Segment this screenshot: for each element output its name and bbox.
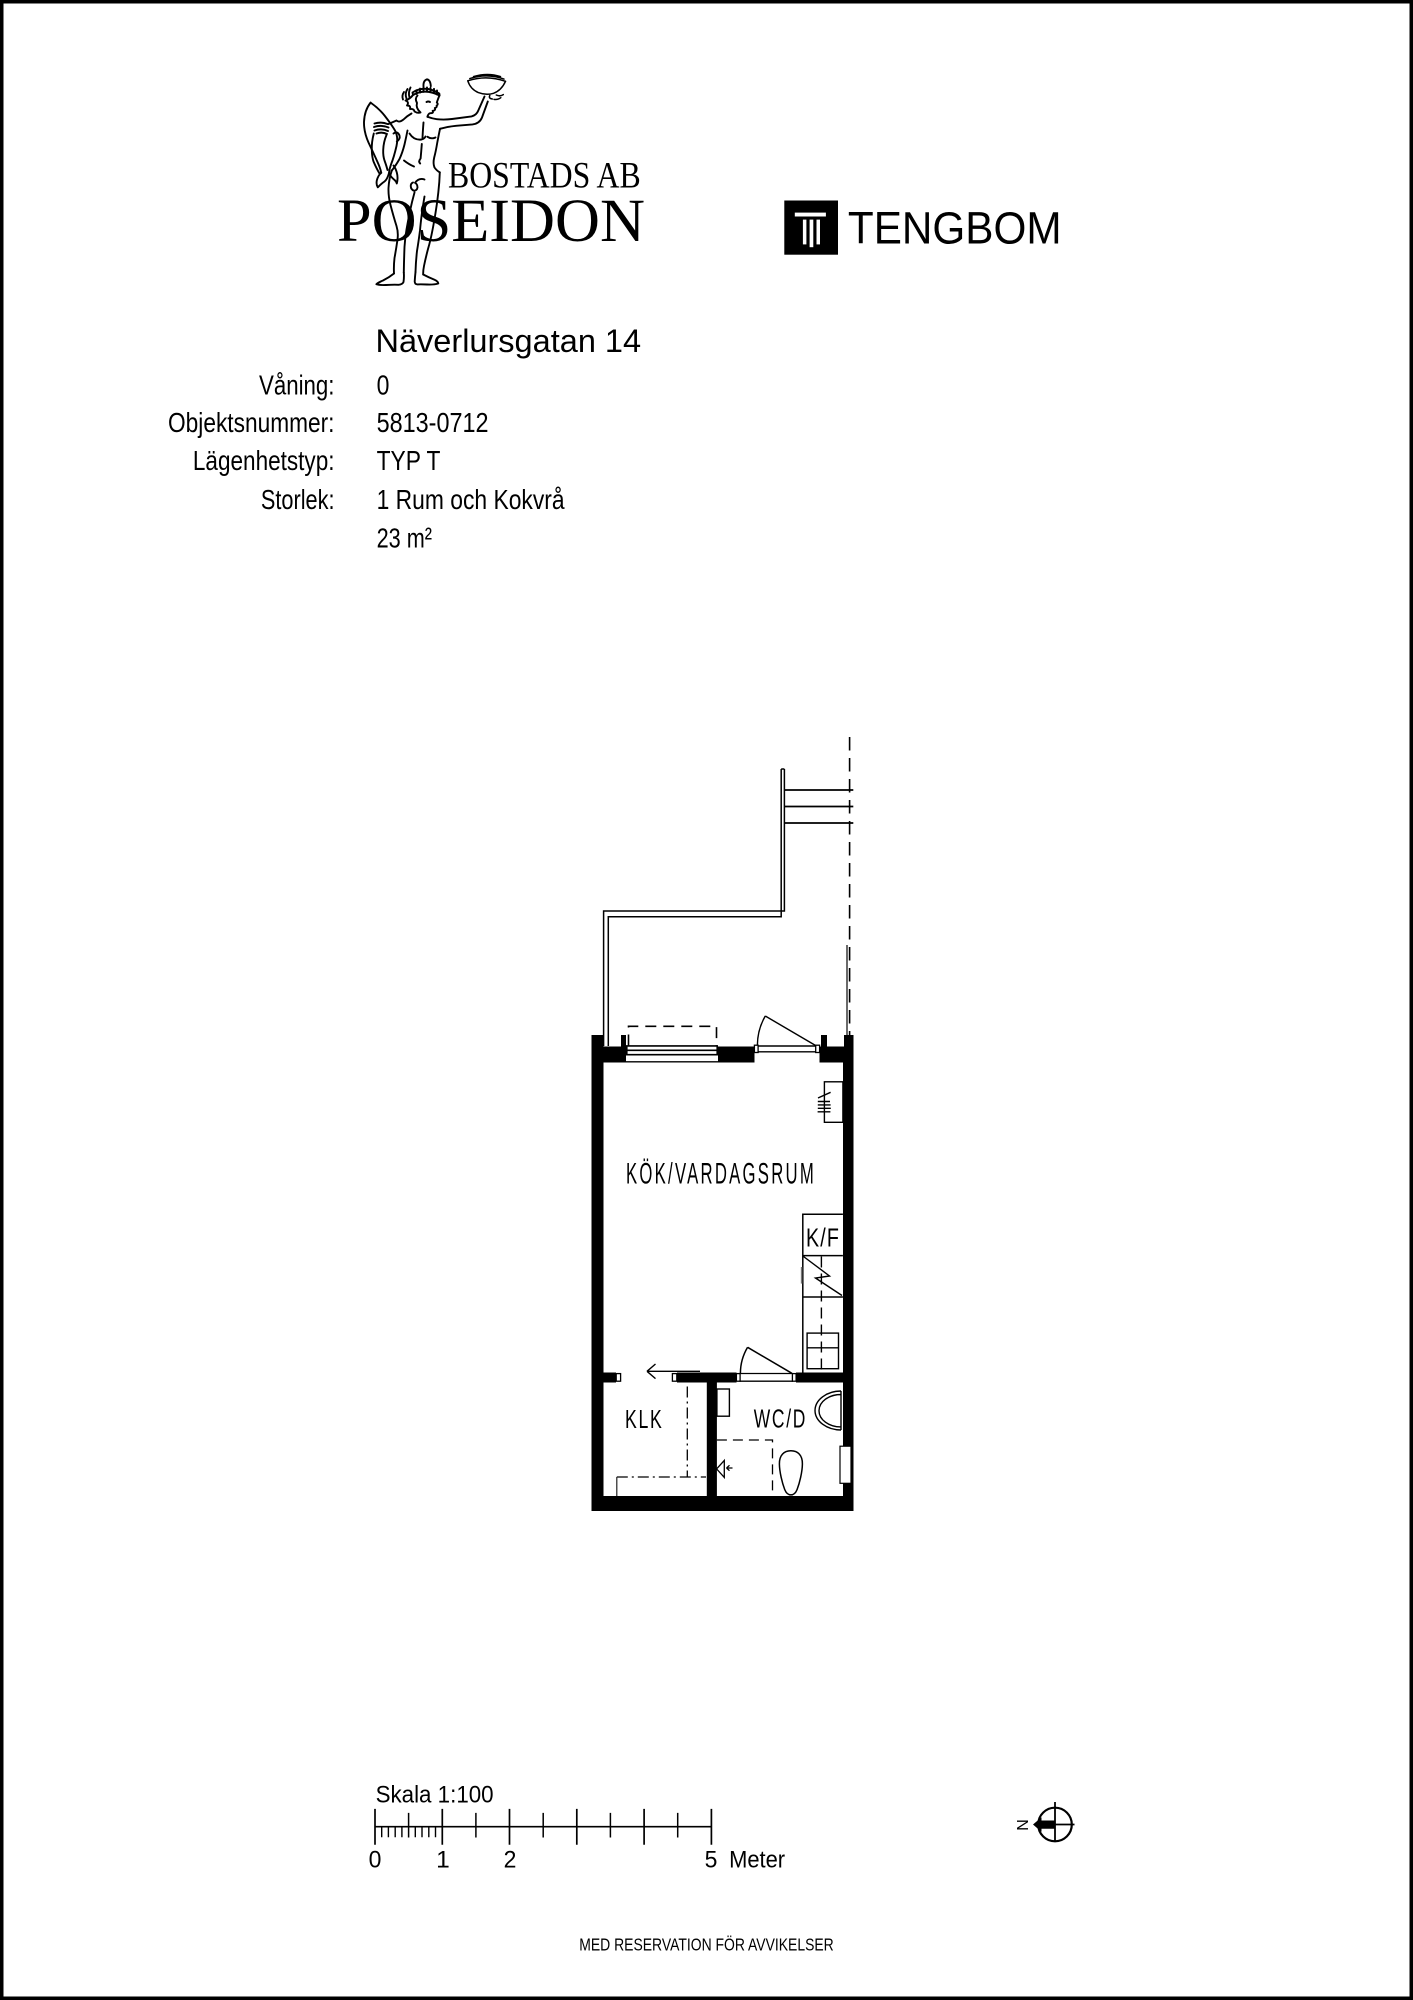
svg-text:5: 5 <box>705 1847 718 1874</box>
svg-text:1 Rum och Kokvrå: 1 Rum och Kokvrå <box>377 484 565 515</box>
svg-text:TENGBOM: TENGBOM <box>848 203 1062 254</box>
svg-text:Skala 1:100: Skala 1:100 <box>376 1782 494 1809</box>
svg-text:5813-0712: 5813-0712 <box>377 407 489 438</box>
svg-text:Storlek:: Storlek: <box>261 484 335 515</box>
svg-text:N: N <box>1015 1819 1032 1831</box>
svg-text:POSEIDON: POSEIDON <box>337 188 645 255</box>
svg-text:Våning:: Våning: <box>259 370 335 401</box>
svg-text:23 m²: 23 m² <box>377 522 432 553</box>
svg-text:KLK: KLK <box>625 1404 664 1434</box>
svg-text:Meter: Meter <box>729 1847 785 1874</box>
svg-text:WC/D: WC/D <box>754 1404 807 1434</box>
svg-text:TYP T: TYP T <box>377 445 441 476</box>
svg-text:0: 0 <box>377 370 390 401</box>
svg-text:Näverlursgatan 14: Näverlursgatan 14 <box>376 323 642 359</box>
svg-text:2: 2 <box>504 1847 517 1874</box>
svg-text:KÖK/VARDAGSRUM: KÖK/VARDAGSRUM <box>626 1158 816 1191</box>
svg-text:MED RESERVATION FÖR AVVIKELSER: MED RESERVATION FÖR AVVIKELSER <box>579 1935 834 1955</box>
svg-text:Objektsnummer:: Objektsnummer: <box>168 407 335 438</box>
svg-text:K/F: K/F <box>806 1223 840 1253</box>
svg-text:Lägenhetstyp:: Lägenhetstyp: <box>193 445 335 476</box>
svg-text:1: 1 <box>436 1847 450 1874</box>
svg-text:0: 0 <box>369 1847 382 1874</box>
